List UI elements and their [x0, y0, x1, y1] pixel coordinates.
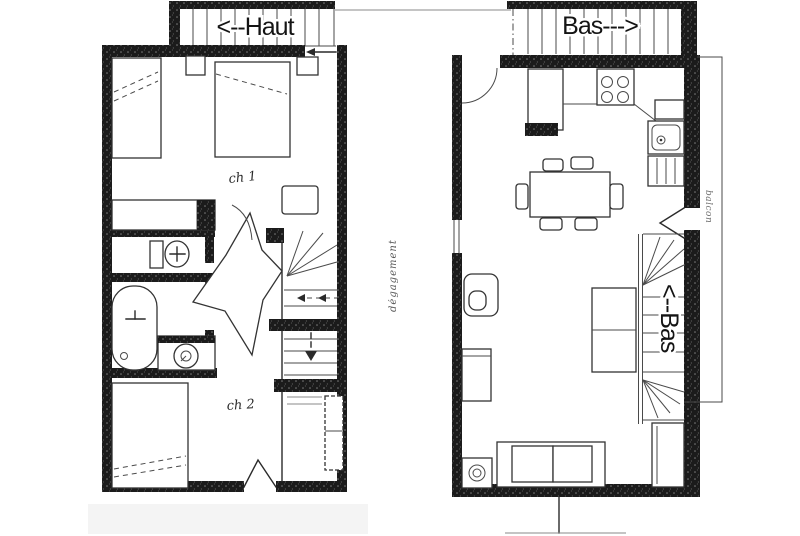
shelf — [297, 57, 318, 75]
chair — [575, 218, 597, 230]
chair — [516, 184, 528, 209]
bed — [112, 383, 188, 488]
double-bed — [215, 62, 290, 157]
floor-plan-canvas: <--Haut — [0, 0, 800, 536]
kitchen-peninsula — [528, 69, 563, 130]
bedroom1-label: ch 1 — [228, 169, 257, 187]
floorplan-scan: <--Haut — [0, 0, 800, 536]
stair-entry-arrow — [306, 48, 336, 56]
door-swing — [244, 460, 276, 487]
tall-cabinet — [652, 423, 684, 487]
sofa — [497, 442, 605, 487]
wc-room — [150, 241, 189, 268]
loveseat — [592, 288, 636, 372]
kitchen-cabinet — [648, 156, 684, 186]
scan-noise — [88, 504, 368, 534]
chair — [543, 159, 563, 171]
exterior-staircase-up: <--Haut — [169, 1, 335, 49]
bedroom2-label: ch 2 — [226, 397, 255, 414]
entry-door-arc — [462, 68, 497, 103]
armchair — [462, 349, 491, 401]
dining-set — [516, 157, 623, 230]
toilet-tank — [150, 241, 163, 268]
bed — [112, 58, 161, 158]
bathtub — [112, 286, 157, 370]
storage-room — [287, 396, 343, 470]
wardrobe — [112, 200, 215, 230]
side-table-lamp — [462, 458, 492, 488]
hall-note: dégagement — [388, 239, 399, 312]
exterior-staircase-down: Bas---> — [507, 1, 697, 57]
stairs-down-label: Bas---> — [562, 12, 638, 40]
desk — [282, 186, 318, 214]
lower-wc — [464, 274, 498, 316]
dining-table — [530, 172, 610, 217]
bedroom-2: ch 2 — [112, 383, 276, 488]
stove — [597, 69, 634, 105]
upper-floor-plan: <--Haut — [102, 1, 511, 492]
chair — [571, 157, 593, 169]
upper-interior-stairs — [284, 231, 337, 375]
chair — [540, 218, 562, 230]
balcony-label: balcon — [703, 190, 713, 223]
down-arrow — [305, 351, 317, 361]
kitchen-sink — [648, 121, 684, 154]
chair — [610, 184, 623, 209]
washbasin — [158, 336, 215, 370]
nightstand — [186, 56, 205, 75]
corner-counter — [655, 100, 684, 119]
stairs-up-label: <--Haut — [216, 13, 294, 41]
bedroom-1: ch 1 — [112, 56, 318, 230]
stairs-inner-label: <--Bas — [655, 284, 683, 353]
lower-floor-plan: Bas---> — [452, 1, 722, 533]
